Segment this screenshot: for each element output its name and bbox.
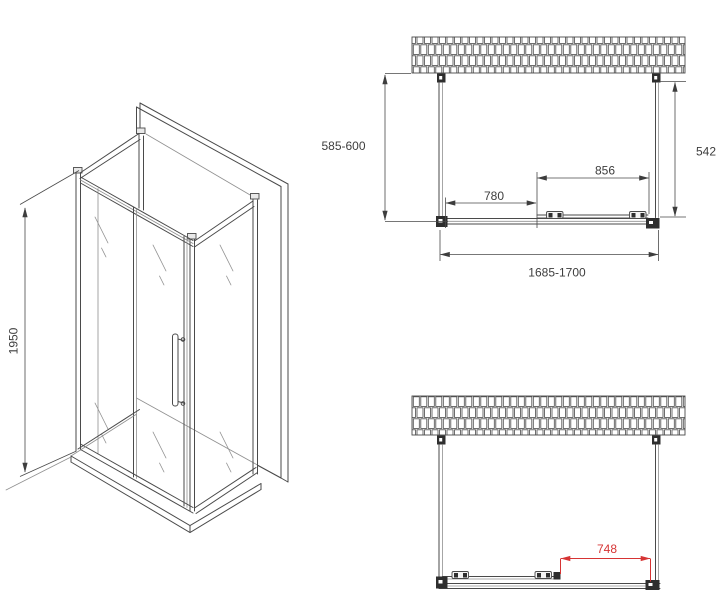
right-depth-label: 542 (696, 145, 716, 159)
door-handle (173, 334, 185, 406)
overall-width-label: 1685-1700 (528, 266, 586, 280)
back-left-post-cap (137, 128, 146, 134)
wall-brackets (437, 74, 661, 83)
dimension-overall-width: 1685-1700 (440, 230, 659, 280)
plan-view-top: 585-600 542 780 856 1685-1700 (321, 37, 716, 280)
right-side-top-rail (195, 201, 255, 247)
wall-brackets (437, 436, 661, 445)
door-width-label: 856 (595, 164, 615, 178)
extension-line (20, 171, 79, 205)
left-side-top-rail (80, 134, 140, 179)
door-roller (547, 212, 564, 219)
plan-view-bottom: 748 (412, 396, 685, 590)
dimension-fixed-panel: 780 (446, 189, 537, 228)
door-roller (535, 572, 552, 579)
drawing-svg: 1950 (0, 0, 726, 600)
front-left-post (76, 172, 81, 451)
floor-line (6, 458, 70, 491)
front-track-assembly (436, 212, 660, 229)
technical-drawing-canvas: 1950 (0, 0, 726, 600)
front-right-post (190, 239, 195, 511)
door-roller (452, 572, 469, 579)
shower-tray (71, 410, 261, 533)
iso-wall-panel (137, 103, 289, 482)
tray-rim-outer (71, 456, 261, 526)
height-dimension-label: 1950 (7, 327, 21, 354)
left-depth-label: 585-600 (321, 139, 365, 153)
isometric-view: 1950 (6, 103, 288, 533)
iso-front-panels (98, 189, 187, 508)
door-roller (630, 212, 647, 219)
dimension-right-depth: 542 (660, 82, 717, 218)
door-edge-stop (554, 572, 561, 580)
back-left-post (139, 134, 144, 210)
iso-top-rails (80, 134, 254, 248)
dimension-left-depth: 585-600 (321, 74, 448, 222)
back-right-post (253, 199, 258, 474)
left-bottom-rail (78, 410, 140, 450)
wall-hatch (412, 37, 685, 73)
front-track-assembly (436, 572, 660, 591)
back-right-post-cap (251, 194, 260, 200)
wall-hatch (412, 396, 685, 435)
right-bottom-rail (195, 468, 258, 514)
dimension-height-1950: 1950 (7, 171, 80, 477)
fixed-panel-width-label: 780 (484, 189, 504, 203)
dimension-door-opening: 748 (561, 542, 651, 582)
extension-line (20, 451, 77, 477)
door-opening-label: 748 (597, 542, 617, 556)
glass-shine-marks (95, 217, 233, 472)
wall-attachment-edge (146, 134, 251, 196)
